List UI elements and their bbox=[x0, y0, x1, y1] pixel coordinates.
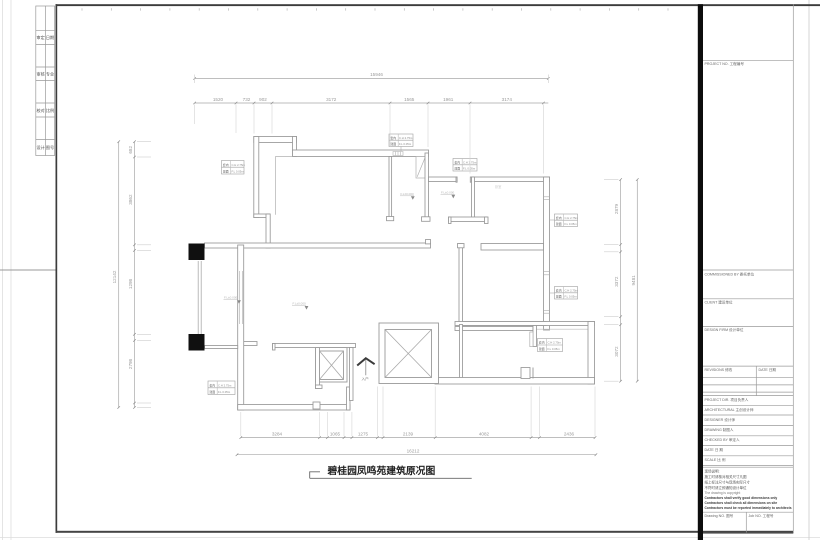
svg-text:建面: 建面 bbox=[223, 168, 229, 173]
svg-text:COMMISSIONED BY 委托单位: COMMISSIONED BY 委托单位 bbox=[705, 271, 755, 276]
svg-text:建面: 建面 bbox=[209, 389, 215, 394]
svg-text:12142: 12142 bbox=[112, 270, 117, 283]
svg-text:CLIENT 建设单位: CLIENT 建设单位 bbox=[705, 300, 733, 305]
svg-text:9481: 9481 bbox=[631, 275, 636, 286]
svg-text:卧室: 卧室 bbox=[495, 184, 501, 189]
svg-text:套内: 套内 bbox=[223, 162, 229, 167]
svg-text:套内: 套内 bbox=[390, 135, 396, 140]
svg-text:3072: 3072 bbox=[614, 346, 619, 357]
svg-text:SCALE 比 例: SCALE 比 例 bbox=[705, 457, 726, 462]
svg-text:CHECKED BY 审定人: CHECKED BY 审定人 bbox=[705, 437, 740, 442]
svg-text:C.H 2.75m: C.H 2.75m bbox=[218, 383, 232, 387]
svg-text:3862: 3862 bbox=[128, 194, 133, 205]
svg-text:施工时请核对相关尺寸凡图: 施工时请核对相关尺寸凡图 bbox=[705, 474, 747, 479]
svg-text:不符时请立即通知设计单位: 不符时请立即通知设计单位 bbox=[705, 485, 747, 490]
svg-text:F.L±0.000: F.L±0.000 bbox=[224, 296, 237, 300]
svg-text:F.L±0.000: F.L±0.000 bbox=[441, 191, 454, 195]
svg-text:Drawing NO. 图号: Drawing NO. 图号 bbox=[705, 513, 734, 518]
svg-text:建面: 建面 bbox=[539, 346, 545, 351]
svg-text:建面: 建面 bbox=[390, 141, 396, 146]
svg-text:C.H 2.75m: C.H 2.75m bbox=[565, 216, 579, 220]
svg-text:F.L 0.05m: F.L 0.05m bbox=[565, 294, 578, 298]
svg-text:入户: 入户 bbox=[362, 376, 370, 381]
svg-text:C.H 2.75m: C.H 2.75m bbox=[399, 136, 413, 140]
svg-text:PROJECT NO. 工程编号: PROJECT NO. 工程编号 bbox=[705, 61, 745, 66]
svg-text:C.H 2.75m: C.H 2.75m bbox=[232, 163, 246, 167]
svg-text:Contractors shall check all di: Contractors shall check all dimensions o… bbox=[705, 501, 778, 505]
svg-text:建面: 建面 bbox=[556, 221, 562, 226]
svg-text:F.L 0.05m: F.L 0.05m bbox=[232, 169, 245, 173]
svg-text:套内: 套内 bbox=[454, 159, 460, 164]
svg-text:图号: 图号 bbox=[46, 144, 54, 150]
svg-text:F.L 0.05m: F.L 0.05m bbox=[463, 166, 476, 170]
svg-text:16212: 16212 bbox=[407, 449, 420, 454]
svg-text:建面: 建面 bbox=[556, 293, 562, 298]
svg-text:2139: 2139 bbox=[403, 431, 414, 436]
svg-text:3174: 3174 bbox=[502, 97, 513, 102]
svg-text:DESIGNER 设计师: DESIGNER 设计师 bbox=[705, 417, 736, 422]
svg-text:Contractors shall verify good: Contractors shall verify good dimensions… bbox=[705, 496, 778, 500]
svg-text:PROJECT DIR. 项目负责人: PROJECT DIR. 项目负责人 bbox=[705, 397, 749, 402]
svg-text:套内: 套内 bbox=[539, 340, 545, 345]
svg-text:3284: 3284 bbox=[272, 431, 283, 436]
svg-text:DATE 日期: DATE 日期 bbox=[759, 367, 777, 372]
svg-text:1298: 1298 bbox=[128, 278, 133, 289]
svg-text:F.L 0.05m: F.L 0.05m bbox=[548, 347, 561, 351]
svg-text:1961: 1961 bbox=[443, 97, 454, 102]
svg-text:DATE 日 期: DATE 日 期 bbox=[705, 447, 724, 452]
svg-text:比例: 比例 bbox=[46, 107, 54, 113]
svg-text:C.H 2.75m: C.H 2.75m bbox=[548, 341, 562, 345]
svg-text:1565: 1565 bbox=[404, 97, 415, 102]
svg-text:902: 902 bbox=[259, 97, 267, 102]
svg-text:REVISIONS 修改: REVISIONS 修改 bbox=[705, 367, 733, 372]
svg-text:套内: 套内 bbox=[209, 382, 215, 387]
svg-text:ARCHITECTURAL 主创设计师: ARCHITECTURAL 主创设计师 bbox=[705, 407, 754, 412]
svg-text:F.L±0.000: F.L±0.000 bbox=[293, 302, 306, 306]
svg-text:3372: 3372 bbox=[614, 276, 619, 287]
svg-text:1520: 1520 bbox=[213, 97, 224, 102]
svg-text:The drawing is copyright: The drawing is copyright bbox=[705, 491, 741, 495]
svg-text:3172: 3172 bbox=[326, 97, 337, 102]
svg-text:套内: 套内 bbox=[556, 215, 562, 220]
svg-text:2436: 2436 bbox=[564, 431, 575, 436]
svg-text:审核: 审核 bbox=[37, 70, 45, 76]
svg-text:F.L 0.05m: F.L 0.05m bbox=[565, 222, 578, 226]
svg-text:现场说明:: 现场说明: bbox=[705, 468, 720, 473]
svg-text:审定: 审定 bbox=[37, 34, 45, 40]
svg-text:设计: 设计 bbox=[37, 144, 45, 150]
svg-text:Contractors must be reported i: Contractors must be reported immediately… bbox=[705, 506, 792, 510]
svg-text:C.H 2.75m: C.H 2.75m bbox=[565, 288, 579, 292]
svg-text:732: 732 bbox=[243, 97, 251, 102]
svg-text:碧桂园凤鸣苑建筑原况图: 碧桂园凤鸣苑建筑原况图 bbox=[327, 464, 436, 477]
svg-text:DRAWING 制图人: DRAWING 制图人 bbox=[705, 427, 734, 432]
svg-text:F.L 0.05m: F.L 0.05m bbox=[218, 390, 231, 394]
svg-text:1275: 1275 bbox=[358, 431, 369, 436]
svg-text:2879: 2879 bbox=[614, 203, 619, 214]
svg-text:15946: 15946 bbox=[370, 72, 383, 77]
svg-text:682: 682 bbox=[128, 146, 133, 154]
svg-text:纸上标注尺寸与现场实际尺寸: 纸上标注尺寸与现场实际尺寸 bbox=[705, 479, 751, 484]
svg-text:F.L±0.000: F.L±0.000 bbox=[401, 192, 414, 196]
svg-text:校对: 校对 bbox=[37, 107, 45, 113]
svg-text:专业: 专业 bbox=[46, 70, 54, 76]
svg-text:日期: 日期 bbox=[46, 34, 54, 40]
svg-text:建面: 建面 bbox=[454, 165, 460, 170]
svg-text:2798: 2798 bbox=[128, 358, 133, 369]
svg-text:Job NO. 工程号: Job NO. 工程号 bbox=[749, 513, 774, 518]
svg-text:DESIGN FIRM 设计单位: DESIGN FIRM 设计单位 bbox=[705, 327, 744, 332]
svg-text:1065: 1065 bbox=[330, 431, 341, 436]
svg-text:4082: 4082 bbox=[479, 431, 490, 436]
svg-text:套内: 套内 bbox=[556, 287, 562, 292]
svg-text:F.L 0.05m: F.L 0.05m bbox=[399, 142, 412, 146]
